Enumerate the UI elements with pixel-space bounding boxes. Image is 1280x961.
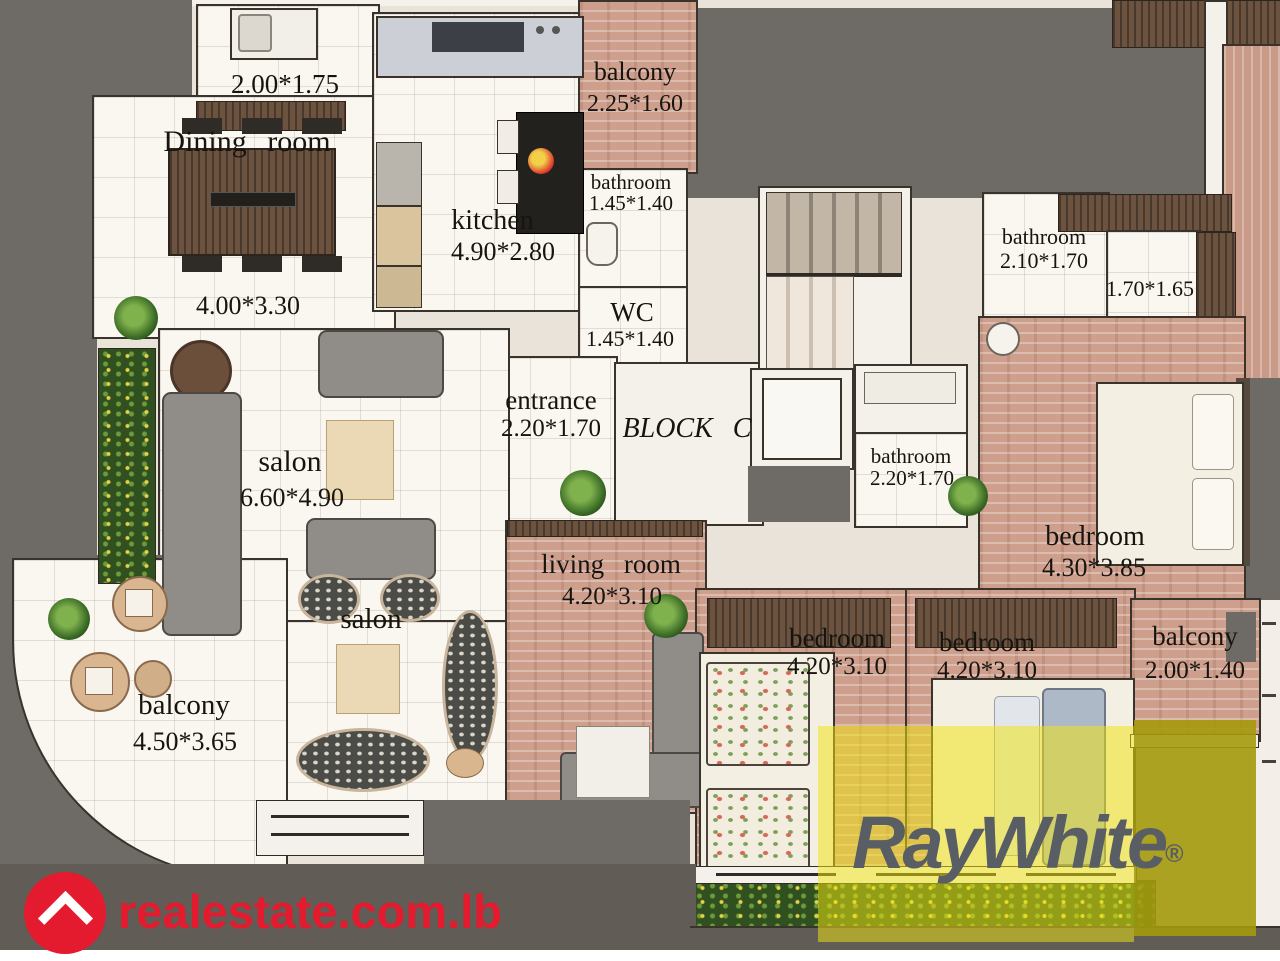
toilet (586, 222, 618, 266)
plant-icon (48, 598, 90, 640)
dining-chair (242, 256, 282, 272)
label-balcony-right-dims: 2.00*1.40 (1132, 658, 1258, 684)
paper-edge-bottom (0, 950, 1280, 961)
label-bathroom-master-dims: 2.20*1.70 (858, 468, 966, 490)
pillow (1192, 394, 1234, 470)
label-wc-name: WC (580, 298, 684, 326)
shaft-void (748, 466, 850, 522)
label-salon2-name: salon (326, 604, 416, 634)
label-balcony-main-name: balcony (122, 690, 246, 720)
exterior-below-living (424, 800, 690, 864)
rug (336, 644, 400, 714)
label-bedroom-a-name: bedroom (772, 624, 902, 652)
sofa (162, 392, 242, 636)
portal-logo-badge (24, 872, 106, 954)
chair-cushion (125, 589, 153, 617)
label-store-dims: 1.70*1.65 (1102, 278, 1198, 301)
label-bedroom-b-name: bedroom (922, 628, 1052, 656)
label-bathroom-master-name: bathroom (856, 446, 966, 468)
living-top-wall (507, 520, 703, 537)
agency-logo-text: RayWhite (852, 801, 1165, 884)
label-balcony-right-name: balcony (1136, 622, 1254, 650)
label-salon-name: salon (240, 446, 340, 477)
kitchen-cabinet (376, 266, 422, 308)
label-entrance-dims: 2.20*1.70 (490, 416, 612, 442)
label-bathroom-right-dims: 2.10*1.70 (988, 250, 1100, 273)
elevator-cab (762, 378, 842, 460)
stairs-lower-flight (766, 276, 854, 374)
stool (446, 748, 484, 778)
dimension-tick (1262, 622, 1276, 625)
label-balcony-top-name: balcony (578, 58, 692, 85)
plant-icon (114, 296, 158, 340)
sofa (306, 518, 436, 580)
dining-chair (182, 256, 222, 272)
label-bedroom-master-name: bedroom (1022, 522, 1168, 551)
window-sill (256, 800, 424, 856)
round-sink (986, 322, 1020, 356)
pillow (1192, 478, 1234, 550)
dining-chair (302, 256, 342, 272)
house-roof-icon (38, 891, 93, 946)
portal-logo: realestate.com.lb (118, 884, 502, 939)
kitchen-cabinet (376, 206, 422, 266)
planter-left (98, 348, 156, 584)
label-dining-name: Dining room (142, 126, 352, 157)
exterior-left (0, 0, 97, 570)
hall-block-c (614, 362, 764, 526)
agency-logo: RayWhite® (852, 800, 1184, 885)
neighbor-wood-band (1112, 0, 1280, 48)
kitchen-chair (497, 120, 519, 154)
label-bedroom-a-dims: 4.20*3.10 (772, 654, 902, 680)
stove-knob (536, 26, 544, 34)
label-laundry-dims: 2.00*1.75 (205, 70, 365, 98)
label-block: BLOCK C (618, 414, 756, 443)
label-bathroom-right-name: bathroom (988, 226, 1100, 249)
bathroom-master-sink (864, 372, 956, 404)
label-balcony-top-dims: 2.25*1.60 (576, 92, 694, 117)
floor-plan-photo: 2.00*1.75 Dining room 4.00*3.30 kitchen … (0, 0, 1280, 961)
room-balcony-top (578, 0, 698, 174)
kitchen-stove (432, 22, 524, 52)
dimension-tick (1262, 760, 1276, 763)
floral-quilt (706, 788, 810, 870)
label-balcony-main-dims: 4.50*3.65 (110, 728, 260, 755)
label-wc-dims: 1.45*1.40 (574, 328, 686, 351)
plant-icon (560, 470, 606, 516)
label-kitchen-dims: 4.90*2.80 (428, 238, 578, 265)
exterior-top-left (97, 0, 192, 97)
window-line (271, 833, 409, 836)
kitchen-chair (497, 170, 519, 204)
label-dining-dims: 4.00*3.30 (168, 292, 328, 319)
label-kitchen-name: kitchen (420, 206, 565, 235)
stove-knob (552, 26, 560, 34)
fruit-bowl (528, 148, 554, 174)
label-bathroom-top-dims: 1.45*1.40 (577, 193, 685, 215)
label-living-name: living room (532, 550, 690, 578)
dining-table-runner (210, 192, 296, 207)
oval-sofa-patterned (296, 728, 430, 792)
kitchen-cabinet (376, 142, 422, 206)
registered-mark: ® (1165, 840, 1183, 868)
label-entrance-name: entrance (490, 386, 612, 414)
oval-sofa-patterned (442, 610, 498, 762)
window-line (271, 815, 409, 818)
chair-cushion (85, 667, 113, 695)
stairs-upper-flight (766, 192, 902, 277)
label-bedroom-master-dims: 4.30*3.85 (1014, 554, 1174, 581)
washer-door (238, 14, 272, 52)
dimension-tick (1262, 694, 1276, 697)
label-bedroom-b-dims: 4.20*3.10 (922, 658, 1052, 684)
label-living-dims: 4.20*3.10 (542, 584, 682, 610)
label-salon-dims: 6.60*4.90 (222, 484, 362, 511)
sofa (318, 330, 444, 398)
rug-white (576, 726, 650, 798)
